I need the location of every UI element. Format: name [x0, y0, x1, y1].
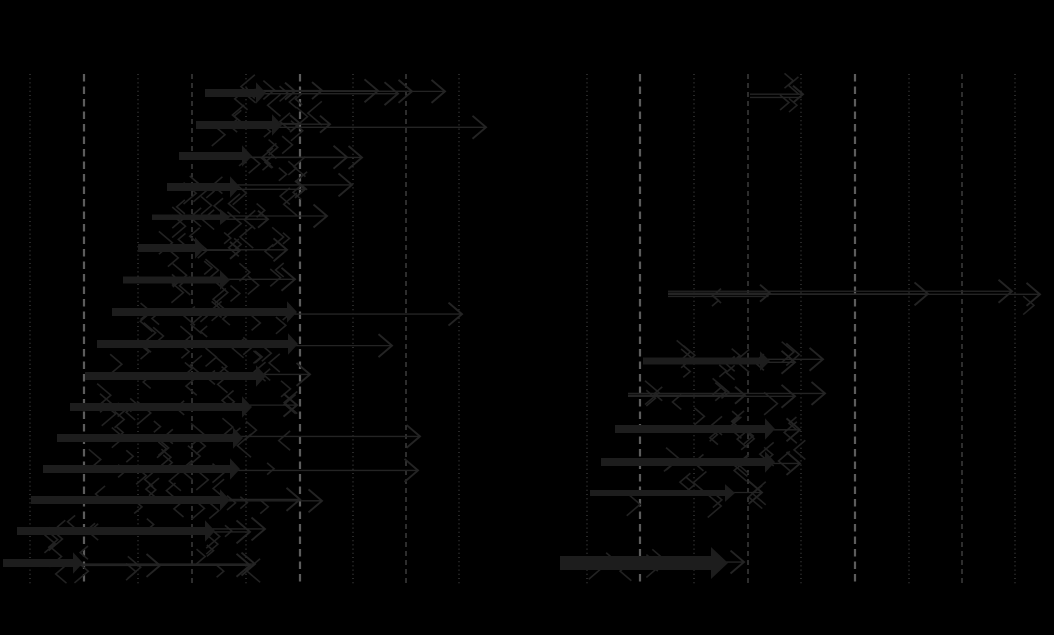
arrow-row	[628, 378, 825, 415]
arrow-row	[668, 280, 1040, 315]
arrow-row	[70, 384, 297, 428]
arrow-row	[138, 226, 289, 267]
arrow-row	[112, 288, 462, 333]
arrow-row	[3, 545, 260, 583]
arrow-row	[560, 547, 744, 581]
arrow-chart-svg	[0, 0, 1054, 635]
arrow-row	[167, 168, 352, 205]
panel-right	[560, 73, 1040, 584]
arrow-row	[196, 101, 486, 146]
arrow-row	[643, 340, 823, 379]
arrow-row	[179, 136, 362, 176]
arrow-row	[97, 323, 392, 367]
panel-left	[3, 74, 486, 584]
arrow-row	[31, 478, 322, 519]
arrow-row	[57, 418, 420, 458]
arrow-row	[43, 446, 418, 491]
arrow-row	[750, 73, 803, 112]
arrow-row	[17, 515, 265, 554]
arrow-row	[123, 259, 295, 304]
arrow-row	[85, 354, 310, 397]
arrow-row	[590, 472, 766, 518]
figure-canvas	[0, 0, 1054, 635]
